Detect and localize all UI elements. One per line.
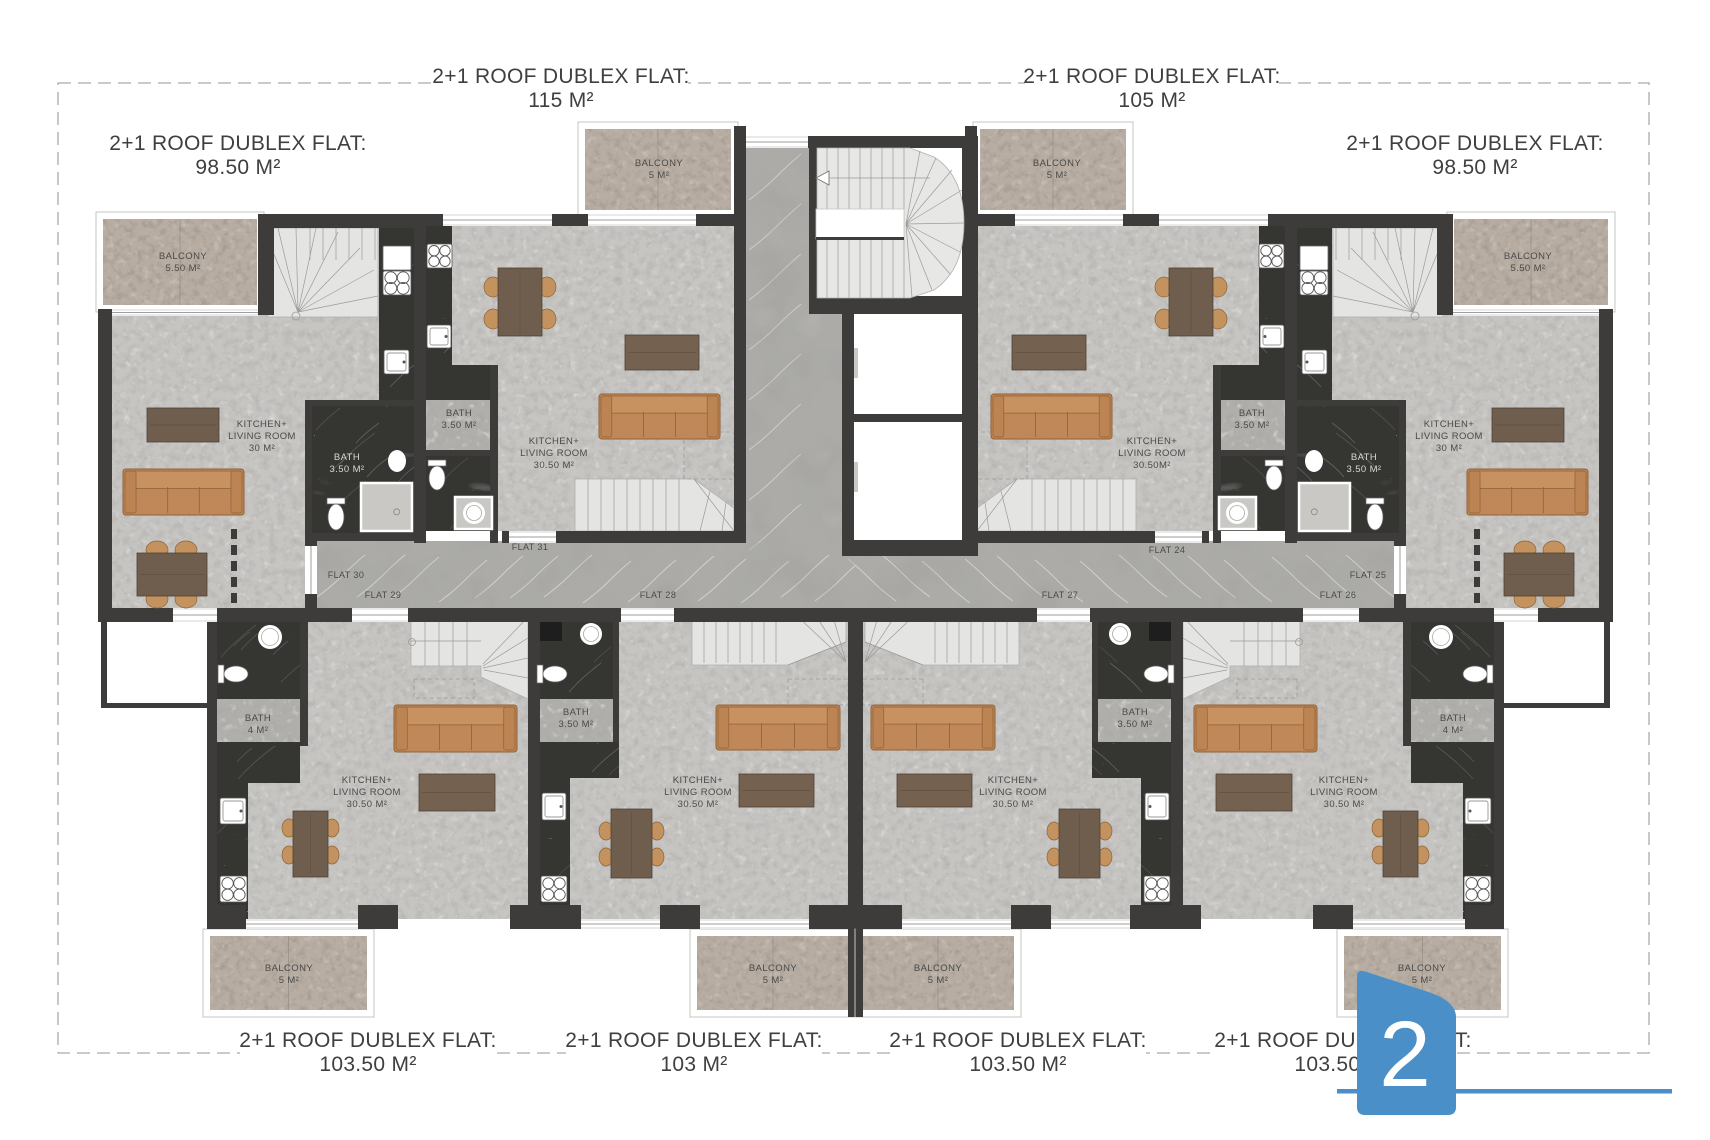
svg-text:5 M²: 5 M²: [1412, 975, 1433, 986]
svg-text:3.50 M²: 3.50 M²: [1117, 719, 1152, 730]
svg-text:FLAT 31: FLAT 31: [512, 542, 548, 552]
svg-text:103.50 M²: 103.50 M²: [969, 1053, 1066, 1076]
svg-text:BALCONY: BALCONY: [159, 251, 207, 262]
svg-text:30 M²: 30 M²: [249, 443, 275, 454]
svg-text:BATH: BATH: [1440, 713, 1466, 724]
svg-text:105 M²: 105 M²: [1118, 89, 1185, 112]
svg-text:2+1 ROOF DUBLEX FLAT:: 2+1 ROOF DUBLEX FLAT:: [109, 132, 366, 155]
svg-text:BALCONY: BALCONY: [265, 963, 313, 974]
svg-text:BATH: BATH: [1239, 408, 1265, 419]
svg-text:5 M²: 5 M²: [279, 975, 300, 986]
svg-text:LIVING ROOM: LIVING ROOM: [333, 787, 401, 798]
svg-text:LIVING ROOM: LIVING ROOM: [1310, 787, 1378, 798]
svg-text:3.50 M²: 3.50 M²: [1234, 420, 1269, 431]
svg-text:FLAT 27: FLAT 27: [1042, 590, 1078, 600]
svg-text:2+1 ROOF DUBLEX FLAT:: 2+1 ROOF DUBLEX FLAT:: [1346, 132, 1603, 155]
svg-text:2+1 ROOF DUBLEX FLAT:: 2+1 ROOF DUBLEX FLAT:: [565, 1029, 822, 1052]
svg-text:BALCONY: BALCONY: [1033, 158, 1081, 169]
svg-text:2+1 ROOF DUBLEX FLAT:: 2+1 ROOF DUBLEX FLAT:: [239, 1029, 496, 1052]
svg-text:LIVING ROOM: LIVING ROOM: [1415, 431, 1483, 442]
svg-text:30.50 M²: 30.50 M²: [1324, 799, 1365, 810]
svg-text:FLAT 28: FLAT 28: [640, 590, 676, 600]
svg-text:KITCHEN+: KITCHEN+: [1319, 775, 1369, 786]
svg-text:FLAT 26: FLAT 26: [1320, 590, 1356, 600]
svg-text:KITCHEN+: KITCHEN+: [1127, 436, 1177, 447]
svg-text:5.50 M²: 5.50 M²: [1510, 263, 1545, 274]
svg-text:KITCHEN+: KITCHEN+: [1424, 419, 1474, 430]
svg-text:103 M²: 103 M²: [660, 1053, 727, 1076]
svg-text:FLAT 24: FLAT 24: [1149, 545, 1185, 555]
svg-text:2+1 ROOF DUBLEX FLAT:: 2+1 ROOF DUBLEX FLAT:: [889, 1029, 1146, 1052]
svg-text:LIVING ROOM: LIVING ROOM: [664, 787, 732, 798]
svg-text:BALCONY: BALCONY: [1504, 251, 1552, 262]
svg-text:4 M²: 4 M²: [1443, 725, 1464, 736]
svg-text:5 M²: 5 M²: [1047, 170, 1068, 181]
svg-text:LIVING ROOM: LIVING ROOM: [520, 448, 588, 459]
svg-text:30.50 M²: 30.50 M²: [347, 799, 388, 810]
svg-text:KITCHEN+: KITCHEN+: [988, 775, 1038, 786]
svg-text:BATH: BATH: [446, 408, 472, 419]
svg-text:30.50 M²: 30.50 M²: [534, 460, 575, 471]
svg-text:5 M²: 5 M²: [649, 170, 670, 181]
svg-text:115 M²: 115 M²: [528, 89, 594, 112]
svg-text:5 M²: 5 M²: [928, 975, 949, 986]
svg-text:3.50 M²: 3.50 M²: [441, 420, 476, 431]
svg-text:BATH: BATH: [563, 707, 589, 718]
svg-text:2: 2: [1379, 1002, 1431, 1106]
svg-text:LIVING ROOM: LIVING ROOM: [1118, 448, 1186, 459]
svg-text:30.50 M²: 30.50 M²: [678, 799, 719, 810]
svg-text:BATH: BATH: [245, 713, 271, 724]
svg-text:FLAT 30: FLAT 30: [328, 570, 364, 580]
svg-text:4 M²: 4 M²: [248, 725, 269, 736]
svg-text:5 M²: 5 M²: [763, 975, 784, 986]
svg-text:3.50 M²: 3.50 M²: [1346, 464, 1381, 475]
svg-text:BALCONY: BALCONY: [749, 963, 797, 974]
svg-text:BATH: BATH: [334, 452, 360, 463]
svg-text:KITCHEN+: KITCHEN+: [529, 436, 579, 447]
svg-text:BALCONY: BALCONY: [1398, 963, 1446, 974]
svg-text:98.50 M²: 98.50 M²: [1432, 156, 1517, 179]
svg-text:3.50 M²: 3.50 M²: [329, 464, 364, 475]
svg-text:2+1 ROOF DUBLEX FLAT:: 2+1 ROOF DUBLEX FLAT:: [1023, 65, 1280, 88]
svg-text:98.50 M²: 98.50 M²: [195, 156, 280, 179]
svg-text:FLAT 25: FLAT 25: [1350, 570, 1386, 580]
svg-text:3.50 M²: 3.50 M²: [558, 719, 593, 730]
svg-text:BATH: BATH: [1351, 452, 1377, 463]
svg-text:KITCHEN+: KITCHEN+: [237, 419, 287, 430]
svg-text:30.50M²: 30.50M²: [1133, 460, 1171, 471]
svg-text:KITCHEN+: KITCHEN+: [342, 775, 392, 786]
svg-text:FLAT 29: FLAT 29: [365, 590, 401, 600]
svg-text:30.50 M²: 30.50 M²: [993, 799, 1034, 810]
svg-text:103.50 M²: 103.50 M²: [319, 1053, 416, 1076]
svg-text:BALCONY: BALCONY: [914, 963, 962, 974]
svg-text:KITCHEN+: KITCHEN+: [673, 775, 723, 786]
svg-text:LIVING ROOM: LIVING ROOM: [979, 787, 1047, 798]
svg-text:30 M²: 30 M²: [1436, 443, 1462, 454]
svg-text:5.50 M²: 5.50 M²: [165, 263, 200, 274]
svg-text:BATH: BATH: [1122, 707, 1148, 718]
svg-text:BALCONY: BALCONY: [635, 158, 683, 169]
svg-text:LIVING ROOM: LIVING ROOM: [228, 431, 296, 442]
svg-text:2+1 ROOF DUBLEX FLAT:: 2+1 ROOF DUBLEX FLAT:: [432, 65, 689, 88]
